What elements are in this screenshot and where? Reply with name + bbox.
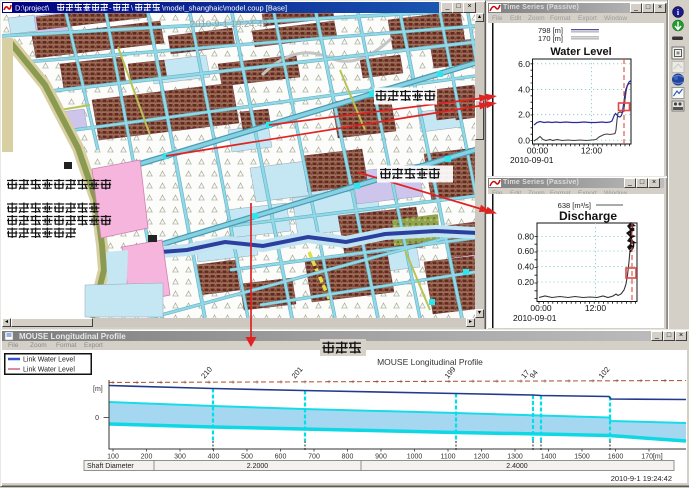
svg-text:2010-09-01: 2010-09-01	[510, 155, 554, 165]
svg-text:200: 200	[141, 454, 153, 461]
svg-text:0.0: 0.0	[518, 135, 530, 145]
svg-text:500: 500	[241, 454, 253, 461]
svg-text:100: 100	[107, 454, 119, 461]
svg-text:2.0: 2.0	[518, 110, 530, 120]
svg-text:1300: 1300	[507, 454, 523, 461]
svg-text:2010-09-01: 2010-09-01	[513, 313, 557, 323]
svg-text:\: \	[131, 4, 134, 13]
svg-text:1400: 1400	[541, 454, 557, 461]
svg-text:400: 400	[208, 454, 220, 461]
svg-text:0.60: 0.60	[517, 246, 534, 256]
svg-text:Link Water Level: Link Water Level	[23, 367, 75, 374]
svg-text:2.2000: 2.2000	[247, 463, 269, 470]
svg-text:Link Water Level: Link Water Level	[23, 357, 75, 364]
svg-text:MOUSE Longitudinal Profile: MOUSE Longitudinal Profile	[377, 357, 483, 367]
svg-text:2.4000: 2.4000	[506, 463, 528, 470]
svg-text:Discharge: Discharge	[559, 209, 617, 223]
svg-text:2010-9-1 19:24:42: 2010-9-1 19:24:42	[611, 474, 672, 483]
svg-text:00:00: 00:00	[527, 146, 549, 156]
svg-text:1100: 1100	[440, 454, 455, 461]
svg-text:12:00: 12:00	[581, 146, 603, 156]
svg-text:0: 0	[95, 415, 99, 422]
svg-text:12:00: 12:00	[585, 303, 607, 313]
svg-text:600: 600	[275, 454, 287, 461]
svg-text:2010-9-1 19:24:42: 2010-9-1 19:24:42	[190, 19, 268, 30]
svg-text:700: 700	[308, 454, 320, 461]
svg-text:4.0: 4.0	[518, 85, 530, 95]
svg-text:Shaft Diameter: Shaft Diameter	[87, 463, 134, 470]
svg-text:300: 300	[174, 454, 186, 461]
svg-text:MOUSE Longitudinal Profile: MOUSE Longitudinal Profile	[19, 332, 126, 341]
svg-text:170[m]: 170[m]	[641, 454, 662, 461]
svg-text:900: 900	[375, 454, 387, 461]
svg-text:00:00: 00:00	[530, 303, 552, 313]
svg-text:6.0: 6.0	[518, 59, 530, 69]
svg-text:Water Level: Water Level	[550, 46, 611, 58]
svg-text:[m]: [m]	[93, 386, 103, 393]
svg-text:800: 800	[342, 454, 354, 461]
svg-text:1500: 1500	[574, 454, 590, 461]
svg-text:0.20: 0.20	[517, 277, 534, 287]
svg-text:0.80: 0.80	[517, 232, 534, 242]
svg-text:1600: 1600	[608, 454, 624, 461]
svg-text:1200: 1200	[474, 454, 490, 461]
svg-text:0.40: 0.40	[517, 262, 534, 272]
svg-text:\model_shanghaic\model.coup [B: \model_shanghaic\model.coup [Base]	[162, 4, 287, 13]
svg-text:1000: 1000	[407, 454, 423, 461]
svg-text:-: -	[109, 4, 112, 13]
svg-text:D:\project\: D:\project\	[15, 4, 50, 13]
svg-text:170 [m]: 170 [m]	[538, 34, 563, 43]
